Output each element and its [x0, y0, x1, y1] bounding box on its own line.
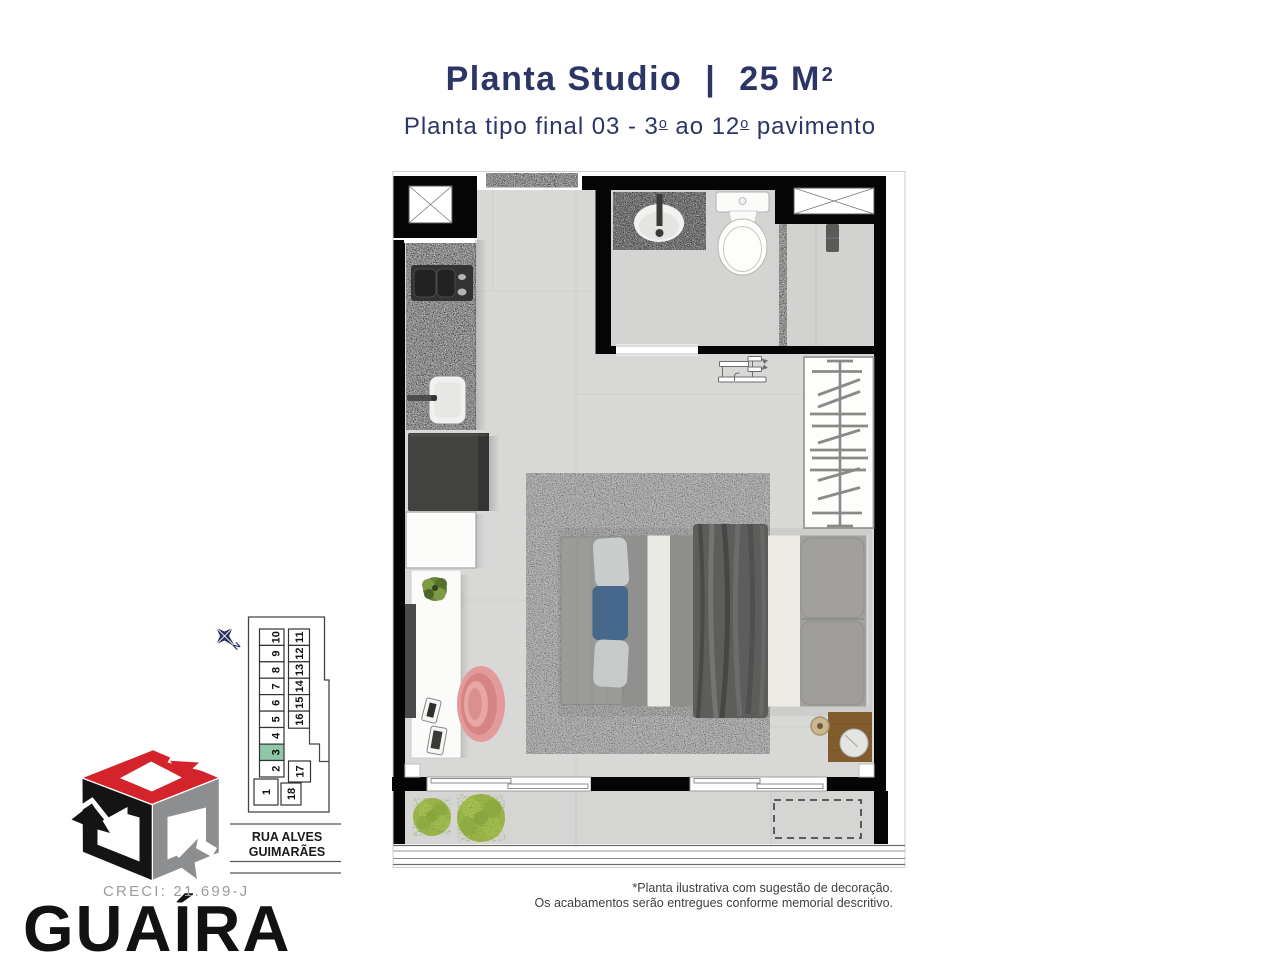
svg-text:13: 13 [294, 664, 306, 676]
svg-text:5: 5 [271, 716, 283, 722]
svg-text:6: 6 [271, 700, 283, 706]
svg-text:N: N [231, 640, 243, 652]
svg-text:8: 8 [271, 667, 283, 673]
svg-text:15: 15 [294, 697, 306, 709]
svg-text:12: 12 [294, 647, 306, 659]
svg-text:17: 17 [295, 765, 307, 777]
svg-text:4: 4 [271, 732, 283, 739]
svg-text:GUIMARÃES: GUIMARÃES [249, 844, 325, 859]
svg-text:9: 9 [271, 651, 283, 657]
svg-text:16: 16 [294, 713, 306, 725]
svg-text:10: 10 [271, 631, 283, 643]
svg-text:11: 11 [294, 631, 306, 643]
svg-text:18: 18 [286, 788, 298, 800]
svg-text:1: 1 [261, 789, 273, 795]
svg-text:14: 14 [294, 679, 306, 692]
svg-text:3: 3 [271, 749, 283, 755]
svg-text:2: 2 [271, 766, 283, 772]
svg-text:RUA ALVES: RUA ALVES [252, 830, 322, 844]
svg-text:7: 7 [271, 683, 283, 689]
